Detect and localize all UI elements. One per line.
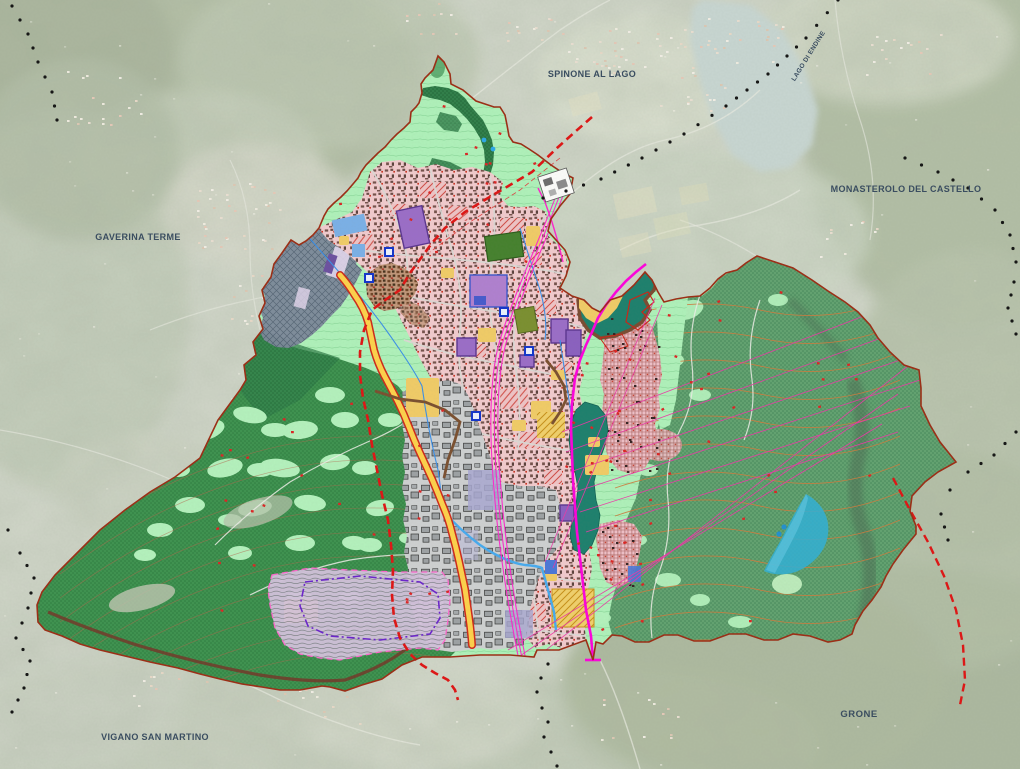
svg-text:GAVERINA TERME: GAVERINA TERME (95, 232, 180, 242)
svg-text:SPINONE AL LAGO: SPINONE AL LAGO (548, 69, 636, 79)
svg-text:VIGANO SAN MARTINO: VIGANO SAN MARTINO (101, 732, 209, 742)
svg-text:GRONE: GRONE (840, 709, 877, 720)
svg-text:MONASTEROLO DEL CASTELLO: MONASTEROLO DEL CASTELLO (831, 184, 982, 194)
